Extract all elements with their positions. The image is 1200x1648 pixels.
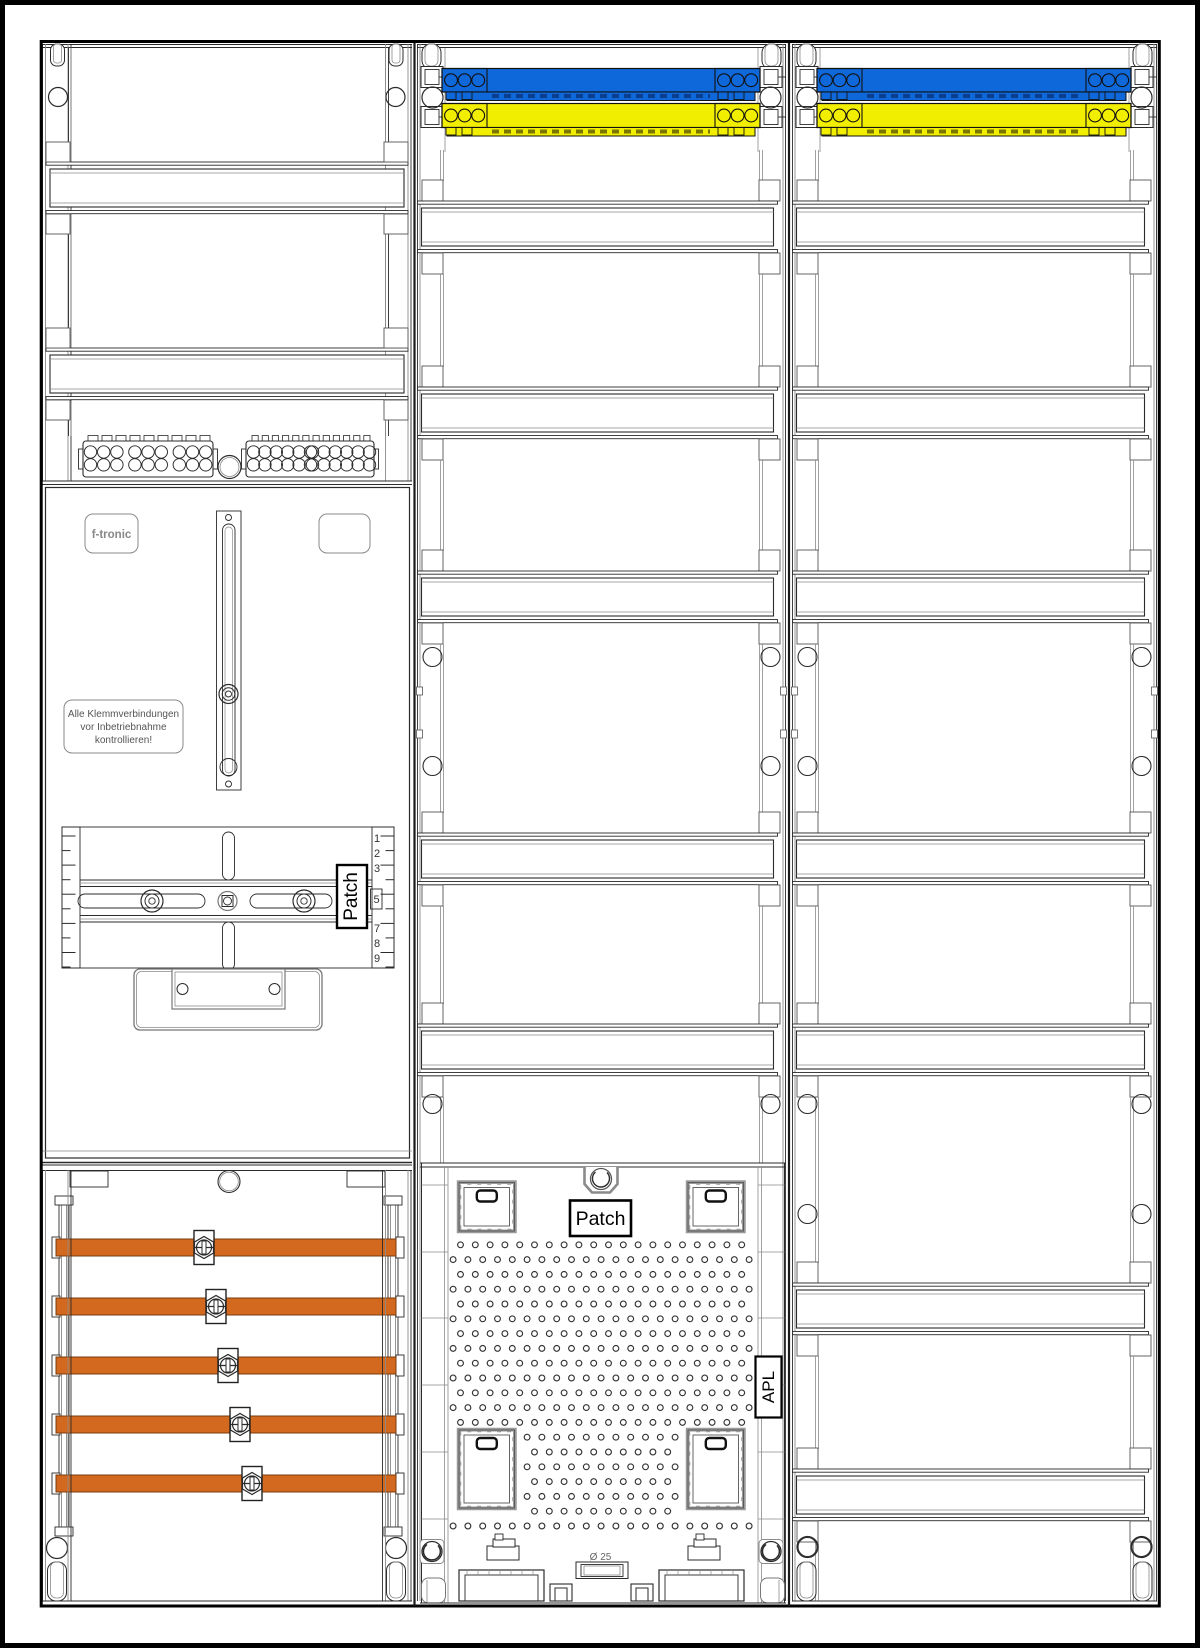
svg-text:vor Inbetriebnahme: vor Inbetriebnahme (80, 722, 167, 733)
svg-text:Patch: Patch (341, 872, 362, 921)
svg-text:2: 2 (374, 848, 380, 860)
svg-text:Patch: Patch (576, 1208, 626, 1230)
svg-text:f-tronic: f-tronic (92, 529, 132, 541)
svg-text:7: 7 (374, 923, 380, 935)
svg-text:kontrollieren!: kontrollieren! (95, 735, 152, 746)
svg-text:APL: APL (759, 1371, 778, 1403)
svg-text:1: 1 (374, 833, 380, 845)
svg-text:3: 3 (374, 863, 380, 875)
svg-text:Ø 25: Ø 25 (590, 1552, 612, 1563)
svg-text:8: 8 (374, 938, 380, 950)
svg-text:Alle Klemmverbindungen: Alle Klemmverbindungen (68, 709, 179, 720)
svg-text:5: 5 (373, 894, 379, 906)
svg-text:9: 9 (374, 953, 380, 965)
